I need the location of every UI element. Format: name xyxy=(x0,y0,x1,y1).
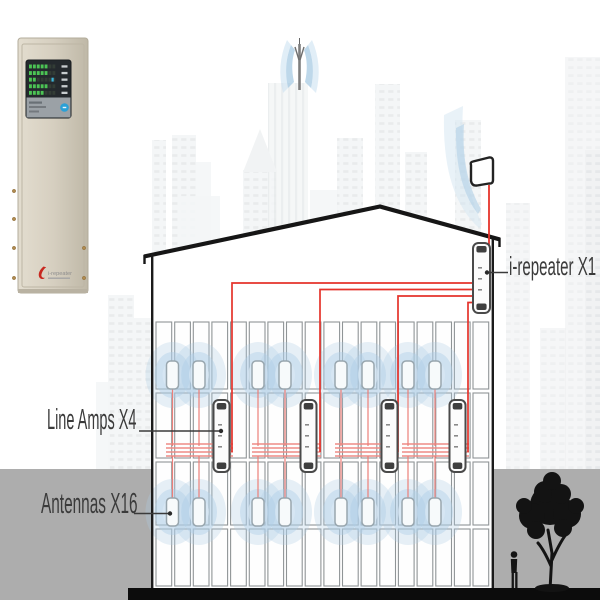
indoor-antenna-device xyxy=(167,361,179,389)
ground-base-strip xyxy=(128,588,600,600)
indoor-antenna-device xyxy=(279,498,291,526)
line-amp-device-mark xyxy=(218,435,222,437)
room-cell xyxy=(473,462,489,525)
skyline-building xyxy=(134,318,152,470)
i-repeater-unit-cap xyxy=(476,246,486,253)
skyline-building xyxy=(585,150,600,470)
donor-antenna-icon xyxy=(471,157,493,185)
indoor-antenna-device xyxy=(279,361,291,389)
room-cell xyxy=(473,393,489,458)
indoor-antenna-device xyxy=(429,498,441,526)
indoor-antenna-device xyxy=(335,498,347,526)
screw xyxy=(82,246,85,249)
led-segment xyxy=(49,65,52,69)
skyline-building xyxy=(506,203,530,470)
led-segment xyxy=(41,78,44,82)
panel-text-line xyxy=(29,106,46,108)
indoor-antenna-device xyxy=(193,361,205,389)
i-repeater-unit-mark xyxy=(478,289,482,291)
led-row-label xyxy=(62,72,68,74)
indoor-antenna-device xyxy=(252,361,264,389)
line-amp-device-cap xyxy=(217,463,227,470)
line-amp-device xyxy=(301,400,317,472)
line-amps-label: Line Amps X4 xyxy=(47,406,136,435)
led-segment xyxy=(41,91,44,95)
indoor-antenna-device xyxy=(335,361,347,389)
led-segment xyxy=(29,71,32,75)
indoor-antenna-device xyxy=(362,498,374,526)
line-amp-device-mark xyxy=(454,446,458,448)
line-amp-device-cap xyxy=(453,403,463,410)
led-segment xyxy=(29,91,32,95)
repeater-label: i-repeater X1 xyxy=(509,253,596,279)
line-amp-device-mark xyxy=(454,435,458,437)
line-amp-device xyxy=(382,400,398,472)
line-amp-device-mark xyxy=(386,424,390,426)
room-cell xyxy=(473,529,489,586)
cell-tower-icon xyxy=(280,38,318,93)
led-segment xyxy=(49,71,52,75)
line-amp-device-mark xyxy=(386,446,390,448)
leader-dot-line-amps xyxy=(219,429,223,433)
led-row-label xyxy=(62,92,68,94)
indoor-antenna-device xyxy=(362,361,374,389)
screw xyxy=(12,246,15,249)
skyline-building xyxy=(108,295,134,470)
brand-logo-text: i-repeater xyxy=(48,271,72,277)
line-amp-device-cap xyxy=(385,463,395,470)
screw xyxy=(12,217,15,220)
indoor-antenna-device xyxy=(252,498,264,526)
led-segment xyxy=(37,78,40,82)
led-segment xyxy=(52,78,54,82)
led-segment xyxy=(41,71,44,75)
led-segment xyxy=(29,84,32,88)
leader-dot-antennas xyxy=(168,511,172,515)
led-segment xyxy=(45,91,48,95)
line-amp-device-mark xyxy=(305,446,309,448)
led-segment xyxy=(29,65,32,69)
line-amp-device-cap xyxy=(304,403,314,410)
i-repeater-device xyxy=(473,243,490,313)
led-segment xyxy=(49,91,52,95)
indoor-antenna-device xyxy=(402,361,414,389)
led-segment xyxy=(41,65,44,69)
led-segment xyxy=(33,71,36,75)
indoor-antenna-device xyxy=(193,498,205,526)
indoor-antenna-device xyxy=(167,498,179,526)
line-amp-device-mark xyxy=(386,435,390,437)
led-segment xyxy=(45,78,48,82)
line-amp-device-mark xyxy=(454,424,458,426)
led-segment xyxy=(52,91,55,95)
line-amp-device-mark xyxy=(305,424,309,426)
line-amp-device xyxy=(214,400,230,472)
led-segment xyxy=(37,91,40,95)
led-segment xyxy=(33,78,36,82)
led-segment xyxy=(33,65,36,69)
panel-text-line xyxy=(29,111,39,113)
leader-dot-repeater xyxy=(485,270,489,274)
room-cell xyxy=(305,529,321,586)
led-segment xyxy=(45,65,48,69)
line-amp-device-cap xyxy=(385,403,395,410)
panel-button-glyph xyxy=(63,107,67,108)
screw xyxy=(82,276,85,279)
line-amp-device-cap xyxy=(304,463,314,470)
led-segment xyxy=(52,65,55,69)
led-segment xyxy=(29,78,32,82)
panel-text-line xyxy=(29,102,42,104)
line-amp-device-mark xyxy=(305,435,309,437)
led-segment xyxy=(45,84,48,88)
led-row-label xyxy=(62,85,68,87)
skyline-building xyxy=(540,328,566,470)
i-repeater-unit-cap xyxy=(476,304,486,311)
repeater-cabinet-photo: i-repeater xyxy=(12,38,88,293)
led-segment xyxy=(33,84,36,88)
led-row-label xyxy=(62,79,68,81)
line-amp-device-cap xyxy=(217,403,227,410)
brand-tagline xyxy=(48,278,70,279)
line-amp-device-mark xyxy=(218,446,222,448)
led-segment xyxy=(37,71,40,75)
led-segment xyxy=(41,84,44,88)
room-cell xyxy=(473,322,489,389)
cabinet-shadow xyxy=(18,289,88,293)
line-amp-device-cap xyxy=(453,463,463,470)
led-segment xyxy=(49,84,52,88)
led-segment xyxy=(45,71,48,75)
skyline-building xyxy=(152,140,166,253)
line-amp-device-mark xyxy=(218,424,222,426)
led-segment xyxy=(49,78,52,82)
led-segment xyxy=(37,65,40,69)
indoor-antenna-device xyxy=(429,361,441,389)
line-amp-device xyxy=(450,400,466,472)
led-segment xyxy=(52,71,55,75)
led-row-label xyxy=(62,65,68,67)
led-segment xyxy=(52,84,55,88)
room-cell xyxy=(454,529,470,586)
led-segment xyxy=(37,84,40,88)
i-repeater-unit xyxy=(473,243,490,313)
screw xyxy=(12,276,15,279)
antennas-label: Antennas X16 xyxy=(41,490,138,519)
screw xyxy=(12,189,15,192)
led-segment xyxy=(33,91,36,95)
i-repeater-unit-mark xyxy=(478,278,482,280)
indoor-antenna-device xyxy=(402,498,414,526)
i-repeater-unit-mark xyxy=(478,267,482,269)
